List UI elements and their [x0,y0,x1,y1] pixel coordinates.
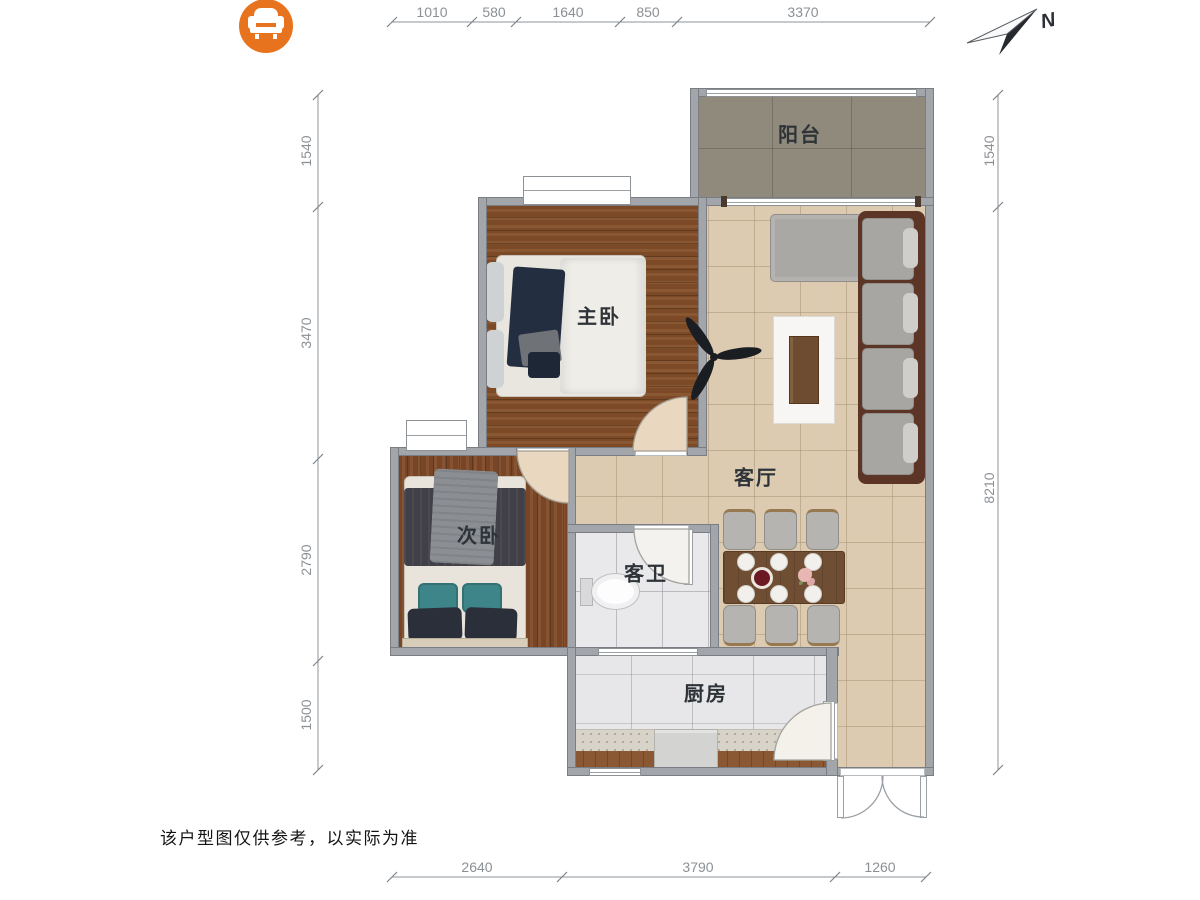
north-arrow-icon [967,9,1037,55]
dim-left-2: 3470 [298,317,314,348]
second-bed-gray-drape [430,468,499,565]
balcony-floor [694,92,929,204]
wall-kitchen-left [567,647,576,776]
room-label-bathroom: 客卫 [624,558,668,587]
sofa-chaise [770,214,863,282]
second-bedroom-door-opening [517,448,569,456]
wall-master-left [478,197,487,456]
dim-left-3: 2790 [298,544,314,575]
window-post-right [915,196,921,207]
wall-bathroom-right [710,524,719,656]
fruit-bowl [751,567,773,589]
bathroom-door-opening [634,525,689,533]
bathroom-window [598,648,698,656]
wall-secondbr-left [390,447,399,656]
dining-plate-5 [770,585,788,603]
dim-right-1: 1540 [981,135,997,166]
balcony-window [706,89,917,97]
dim-bottom-2: 3790 [682,859,713,875]
armchair-leg-right [273,34,277,39]
dim-top-4: 850 [636,4,659,20]
dining-chair-bottom-1 [723,605,756,646]
dim-bottom-1: 2640 [461,859,492,875]
master-bedroom-window [523,176,631,205]
room-label-balcony: 阳台 [778,119,822,148]
master-bed-pillow-top [486,262,504,322]
armchair-icon [239,0,293,53]
dining-plate-6 [804,585,822,603]
coffee-table [789,336,819,404]
sofa-back-pillow-4 [903,423,918,463]
dim-top-3: 1640 [552,4,583,20]
room-label-second-bedroom: 次卧 [457,520,501,549]
entry-door-opening [840,768,925,776]
window-post-left [721,196,727,207]
bathroom-door-leaf [684,529,693,585]
wall-entry-divider-top [826,647,838,704]
dining-chair-top-1 [723,509,756,550]
entry-door-leaf-left [837,776,844,818]
dim-left-4: 1500 [298,699,314,730]
living-balcony-window [726,198,916,206]
master-bed-pillow-bottom [486,330,504,388]
compass-n-label: N [1039,9,1058,35]
sofa-back-pillow-3 [903,358,918,398]
dim-top-1: 1010 [416,4,447,20]
second-bedroom-window [406,420,467,451]
wall-secondbr-right [567,447,576,656]
sofa-back-pillow-2 [903,293,918,333]
dim-right-2: 8210 [981,472,997,503]
wall-balcony-left [690,88,699,205]
second-bed-navy-pillow-right [464,607,517,642]
room-label-living-room: 客厅 [734,462,778,491]
master-bed-navy-pillow [528,352,560,378]
wall-secondbr-bottom [390,647,576,656]
room-label-kitchen: 厨房 [684,678,728,707]
entry-door-leaf-right [920,776,927,818]
floor-plan-canvas: 阳台 主卧 客厅 次卧 客卫 厨房 1010 580 1640 850 3370… [0,0,1200,900]
sofa-back-pillow-1 [903,228,918,268]
second-bed-navy-pillow-left [407,607,462,642]
wall-master-right [698,197,707,456]
armchair-seat [250,27,282,33]
dim-bottom-3: 1260 [864,859,895,875]
dim-left-1: 1540 [298,135,314,166]
kitchen-window [589,768,641,776]
room-label-master-bedroom: 主卧 [577,301,621,330]
disclaimer-text: 该户型图仅供参考，以实际为准 [160,824,419,849]
kitchen-island [654,729,718,769]
dining-chair-top-3 [806,509,839,550]
dining-plate-2 [770,553,788,571]
dining-chair-bottom-3 [807,605,840,646]
armchair-back [254,8,278,23]
wall-master-bottom-right [687,447,707,456]
entry-door-arc-right [882,776,924,817]
wall-right [925,88,934,776]
dim-top-5: 3370 [787,4,818,20]
entry-door-arc-left [841,776,883,818]
dining-chair-top-2 [764,509,797,550]
dim-top-2: 580 [482,4,505,20]
armchair-leg-left [255,34,259,39]
dining-plate-1 [737,553,755,571]
kitchen-door-leaf [823,701,835,761]
dining-chair-bottom-2 [765,605,798,646]
dining-plate-4 [737,585,755,603]
master-door-opening [635,448,687,456]
